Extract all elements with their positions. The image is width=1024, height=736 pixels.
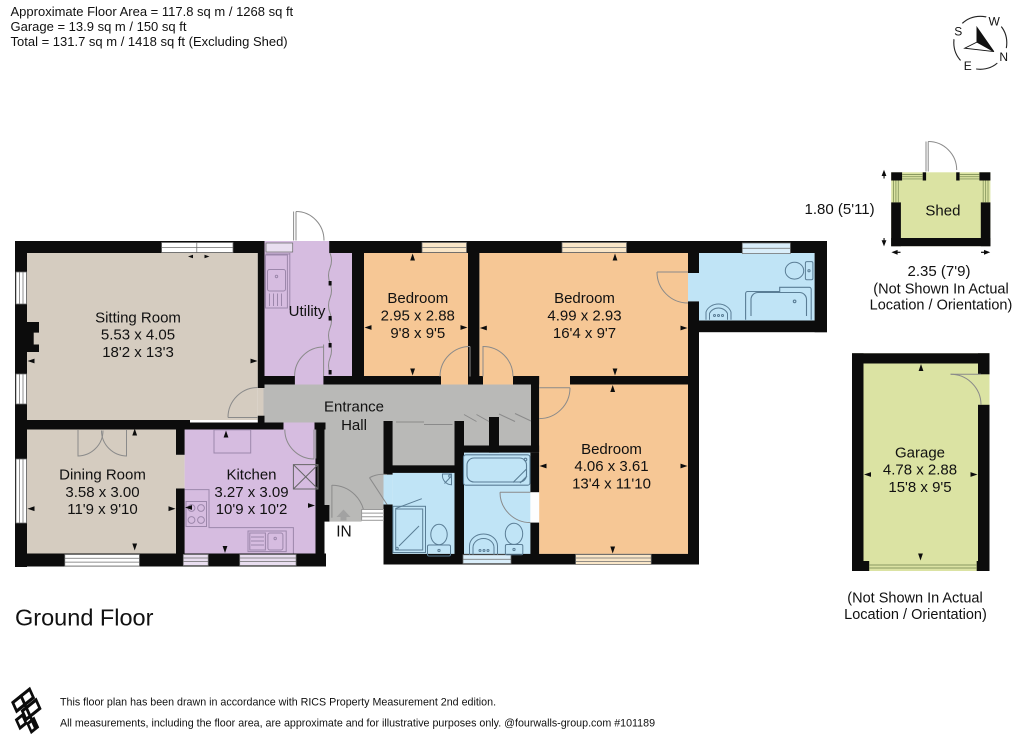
svg-text:N: N: [999, 50, 1008, 64]
svg-text:IN: IN: [336, 524, 352, 541]
svg-text:All measurements, including th: All measurements, including the floor ar…: [60, 718, 655, 730]
svg-text:This floor plan has been drawn: This floor plan has been drawn in accord…: [60, 696, 496, 708]
svg-text:10'9 x 10'2: 10'9 x 10'2: [216, 501, 288, 518]
svg-text:Total = 131.7 sq m / 1418 sq f: Total = 131.7 sq m / 1418 sq ft (Excludi…: [11, 34, 288, 49]
svg-text:2.35 (7'9): 2.35 (7'9): [908, 263, 971, 280]
svg-text:Garage: Garage: [895, 444, 945, 461]
svg-text:(Not Shown In Actual: (Not Shown In Actual: [873, 281, 1008, 297]
svg-text:Hall: Hall: [341, 417, 367, 434]
svg-text:11'9 x 9'10: 11'9 x 9'10: [67, 501, 138, 518]
svg-text:Ground Floor: Ground Floor: [15, 605, 154, 631]
svg-text:Location / Orientation): Location / Orientation): [870, 298, 1013, 314]
svg-text:Location / Orientation): Location / Orientation): [844, 607, 987, 623]
svg-text:4.06 x 3.61: 4.06 x 3.61: [574, 458, 648, 475]
svg-text:Shed: Shed: [925, 203, 960, 220]
svg-text:1.80 (5'11): 1.80 (5'11): [805, 201, 875, 218]
svg-text:16'4 x 9'7: 16'4 x 9'7: [553, 325, 616, 342]
svg-text:2.95 x 2.88: 2.95 x 2.88: [381, 308, 455, 325]
svg-text:Bedroom: Bedroom: [581, 441, 642, 458]
svg-text:S: S: [954, 25, 962, 39]
svg-text:Bedroom: Bedroom: [387, 290, 448, 307]
svg-text:13'4 x 11'10: 13'4 x 11'10: [572, 475, 651, 492]
svg-text:(Not Shown In Actual: (Not Shown In Actual: [847, 591, 982, 607]
svg-text:Bedroom: Bedroom: [554, 290, 615, 307]
svg-text:15'8 x 9'5: 15'8 x 9'5: [888, 479, 951, 496]
svg-text:4.78 x 2.88: 4.78 x 2.88: [883, 462, 957, 479]
svg-text:3.27 x 3.09: 3.27 x 3.09: [214, 484, 288, 501]
svg-text:Garage = 13.9 sq m / 150 sq ft: Garage = 13.9 sq m / 150 sq ft: [11, 19, 187, 34]
svg-text:Kitchen: Kitchen: [226, 467, 276, 484]
svg-text:18'2 x 13'3: 18'2 x 13'3: [102, 344, 174, 361]
svg-text:Approximate Floor Area = 117.8: Approximate Floor Area = 117.8 sq m / 12…: [11, 4, 294, 19]
svg-text:E: E: [964, 59, 972, 73]
svg-text:Sitting Room: Sitting Room: [95, 309, 181, 326]
svg-text:4.99 x 2.93: 4.99 x 2.93: [547, 308, 621, 325]
svg-text:5.53 x 4.05: 5.53 x 4.05: [101, 327, 175, 344]
svg-text:Dining Room: Dining Room: [59, 467, 146, 484]
svg-text:W: W: [989, 14, 1001, 28]
svg-text:3.58 x 3.00: 3.58 x 3.00: [65, 484, 139, 501]
svg-text:Entrance: Entrance: [324, 398, 384, 415]
svg-text:Utility: Utility: [289, 303, 326, 320]
svg-text:9'8 x 9'5: 9'8 x 9'5: [390, 325, 445, 342]
